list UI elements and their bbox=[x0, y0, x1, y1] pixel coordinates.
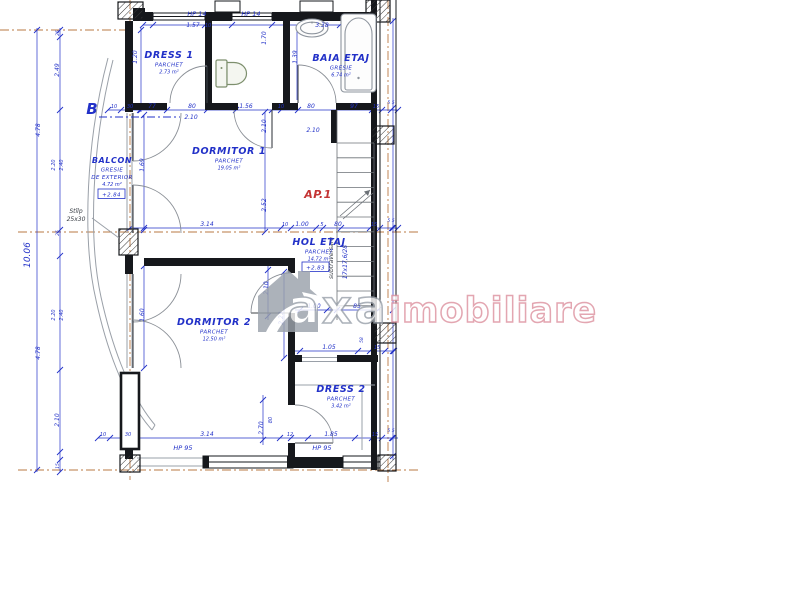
dimension-label: 1.69 bbox=[139, 158, 146, 172]
dimension-label: 15 bbox=[372, 432, 378, 438]
dimension-label: 30 bbox=[125, 432, 131, 438]
dimension-label: 4.78 bbox=[35, 123, 42, 137]
room-area-baia-etaj: 6.74 m² bbox=[331, 73, 351, 79]
dimension-label: 15 bbox=[373, 104, 379, 110]
column-stalp bbox=[119, 229, 138, 255]
dimension-label: 3.14 bbox=[200, 221, 214, 228]
room-area-hol-etaj: 14.72 m² bbox=[308, 257, 331, 263]
door-dormitor1-balcony bbox=[133, 113, 181, 233]
room-finish-hol-etaj: PARCHET bbox=[305, 250, 333, 256]
stair-note: 17x17,6/28 bbox=[342, 245, 349, 279]
column-note: Stîlp 25x30 bbox=[67, 208, 119, 238]
unit-label: AP.1 bbox=[303, 188, 332, 201]
dimension-label: 1.56 bbox=[239, 103, 253, 110]
room-finish-dormitor2: PARCHET bbox=[200, 330, 228, 336]
dimension-label: 10 bbox=[278, 104, 284, 110]
dimension-label: 2.70 bbox=[258, 421, 265, 435]
dimension-label: 5 5 bbox=[387, 428, 394, 434]
column-bottom-right bbox=[378, 455, 396, 471]
room-name-baia-etaj: BAIA ETAJ bbox=[312, 53, 369, 64]
room-area-dress2: 3.42 m² bbox=[331, 404, 351, 410]
dimension-label: 80 bbox=[268, 417, 274, 423]
room-area-balcon: 4.72 m² bbox=[102, 182, 122, 188]
room-finish-dormitor1: PARCHET bbox=[215, 159, 243, 165]
section-marker-label: B bbox=[86, 100, 97, 118]
dimension-label: 80 bbox=[188, 103, 196, 110]
room-name-dress2: DRESS 2 bbox=[316, 384, 365, 395]
dimension-label: 30 bbox=[127, 104, 133, 110]
dimension-label: 15 bbox=[374, 345, 380, 351]
dimension-label: 58 bbox=[359, 337, 365, 343]
column-bottom-left bbox=[120, 455, 140, 472]
room-finish-balcon: GRESIE bbox=[101, 168, 124, 174]
dimension-label: 5 5 bbox=[387, 100, 394, 106]
floor-plan-svg: B Stîlp 25x30 17x17,6/28 subtraversare A… bbox=[0, 0, 800, 600]
room-finish-baia-etaj: GRESIE bbox=[330, 66, 353, 72]
dimension-label: 10 bbox=[282, 222, 288, 228]
dimension-label: HP 14 bbox=[187, 10, 206, 18]
stair-direction-arrow bbox=[364, 190, 370, 196]
dimension-label: 1.70 bbox=[261, 31, 268, 45]
dimension-label: 2.52 bbox=[261, 198, 268, 212]
dimension-label: 15 bbox=[371, 222, 377, 228]
room-area-dormitor2: 12.50 m² bbox=[203, 337, 226, 343]
room-area-dress1: 2.73 m² bbox=[159, 70, 179, 76]
level-balcon-value: +2.84 bbox=[102, 193, 121, 199]
room-finish-dress2: PARCHET bbox=[327, 397, 355, 403]
level-hol: +2.83 bbox=[302, 262, 329, 272]
level-hol-value: +2.83 bbox=[306, 266, 325, 272]
dimension-label: HP 95 bbox=[173, 444, 192, 452]
room-finish-dress1: PARCHET bbox=[155, 63, 183, 69]
floor-plan-page: B Stîlp 25x30 17x17,6/28 subtraversare A… bbox=[0, 0, 800, 600]
dimension-label: 10 bbox=[111, 104, 117, 110]
watermark-brand-first: axa bbox=[288, 280, 389, 334]
dimension-label: 97 bbox=[350, 103, 358, 110]
dimension-label: 2.10 bbox=[54, 413, 61, 427]
dimension-label: 10 bbox=[100, 432, 106, 438]
dimension-label: 77 bbox=[148, 103, 156, 110]
dimension-label: 25 bbox=[55, 230, 61, 236]
dimension-label: 2.40 bbox=[59, 159, 65, 170]
dimension-label: 1.85 bbox=[324, 431, 338, 438]
dimension-label: 1.57 bbox=[186, 22, 200, 29]
dimension-label: 2.10 bbox=[184, 114, 198, 121]
dimension-label: 5 bbox=[320, 222, 323, 228]
room-name-dormitor2: DORMITOR 2 bbox=[177, 317, 251, 328]
room-name-dormitor1: DORMITOR 1 bbox=[192, 146, 266, 157]
column-note-line2: 25x30 bbox=[67, 216, 86, 223]
dimension-label: 80 bbox=[334, 221, 342, 228]
dimension-label: 2.10 bbox=[261, 119, 268, 133]
dimension-label: 4.78 bbox=[35, 346, 42, 360]
dimension-label: 15 bbox=[55, 463, 61, 469]
dimension-label: 2.20 bbox=[51, 159, 57, 170]
room-name-hol-etaj: HOL ETAJ bbox=[292, 237, 345, 248]
dimension-label: 2.20 bbox=[51, 309, 57, 320]
dimension-label: 10.06 bbox=[23, 242, 33, 268]
dimension-label: 25 bbox=[55, 30, 61, 36]
dimension-label: 12 bbox=[287, 432, 293, 438]
dimension-label: 5 5 bbox=[387, 218, 394, 224]
dimension-label: 1.60 bbox=[139, 308, 146, 322]
dimension-label: 1.05 bbox=[322, 344, 336, 351]
room-name-balcon: BALCON bbox=[92, 156, 132, 165]
column-note-line1: Stîlp bbox=[69, 208, 82, 215]
dimension-label: 10 bbox=[205, 23, 211, 29]
dimension-label: 1.00 bbox=[295, 221, 309, 228]
level-balcon: +2.84 bbox=[98, 189, 125, 199]
dimension-label: 3.38 bbox=[315, 22, 329, 29]
dimension-label: 80 bbox=[307, 103, 315, 110]
dimension-label: HP 95 bbox=[312, 444, 331, 452]
dimension-label: 2.40 bbox=[59, 309, 65, 320]
dimension-label: 1.20 bbox=[132, 50, 139, 64]
column-top-left bbox=[118, 2, 143, 19]
column-right-mid1 bbox=[372, 126, 394, 144]
dimension-label: 1.39 bbox=[292, 50, 299, 64]
room-area-dormitor1: 19.05 m² bbox=[218, 166, 241, 172]
dimension-label: 2.10 bbox=[306, 127, 320, 134]
toilet-icon bbox=[216, 60, 246, 87]
room-subtitle-balcon: DE EXTERIOR bbox=[91, 175, 133, 181]
room-name-dress1: DRESS 1 bbox=[144, 50, 193, 61]
watermark-brand-rest: imobiliare bbox=[389, 291, 597, 331]
dimension-label: 2.49 bbox=[54, 63, 61, 77]
watermark: axa imobiliare bbox=[258, 270, 597, 334]
dimension-label: HP 14 bbox=[241, 10, 260, 18]
dimension-label: 3.14 bbox=[200, 431, 214, 438]
